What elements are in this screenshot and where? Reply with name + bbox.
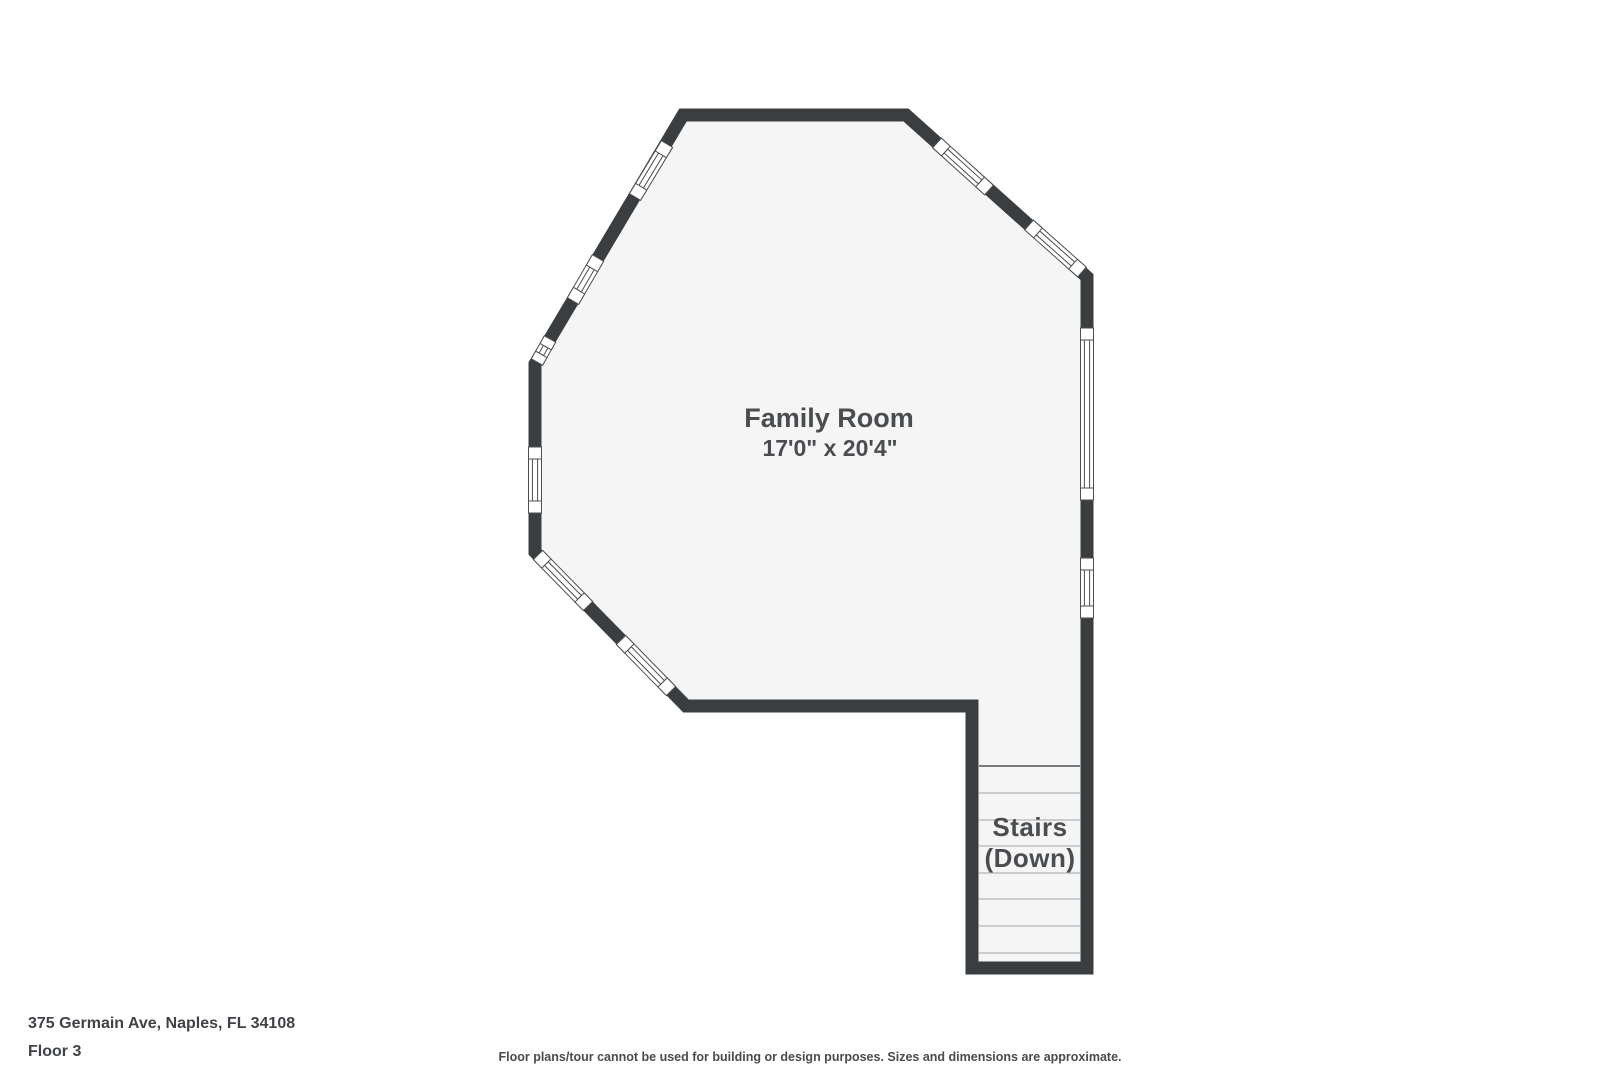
- stairs-label-line2: (Down): [984, 843, 1075, 873]
- window-icon: [529, 447, 542, 513]
- property-address: 375 Germain Ave, Naples, FL 34108: [28, 1016, 295, 1032]
- window-icon: [1081, 328, 1094, 500]
- stairs-label-line1: Stairs: [992, 812, 1067, 842]
- family-room-dimensions: 17'0" x 20'4": [762, 435, 897, 461]
- window-icon: [1081, 558, 1094, 618]
- floor-plan: Family Room 17'0" x 20'4" Stairs (Down): [0, 0, 1620, 1080]
- floor-plan-page: Family Room 17'0" x 20'4" Stairs (Down) …: [0, 0, 1620, 1080]
- disclaimer-text: Floor plans/tour cannot be used for buil…: [0, 1051, 1620, 1064]
- family-room-label: Family Room: [744, 403, 914, 433]
